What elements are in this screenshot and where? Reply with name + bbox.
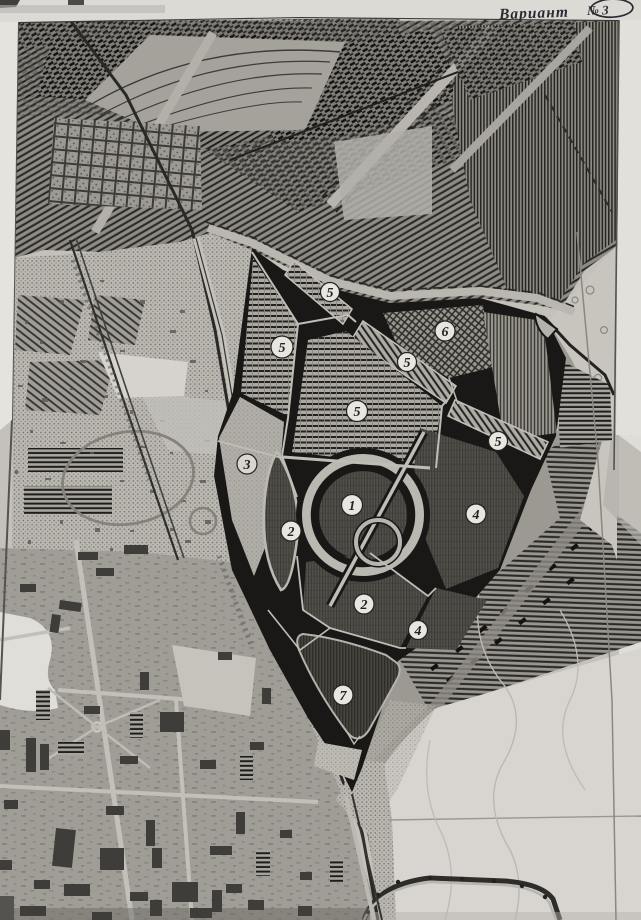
svg-text:4: 4 (472, 508, 480, 523)
svg-text:2: 2 (360, 598, 368, 613)
svg-text:6: 6 (442, 325, 449, 340)
svg-text:5: 5 (354, 405, 361, 420)
svg-text:Вариант: Вариант (498, 4, 569, 23)
svg-text:2: 2 (287, 525, 295, 540)
svg-text:3: 3 (243, 458, 251, 473)
svg-text:5: 5 (327, 286, 334, 301)
svg-text:5: 5 (279, 341, 286, 356)
svg-text:4: 4 (414, 624, 422, 639)
svg-text:5: 5 (404, 356, 411, 371)
svg-text:5: 5 (495, 435, 502, 450)
svg-text:7: 7 (340, 689, 348, 704)
svg-text:1: 1 (349, 499, 356, 514)
